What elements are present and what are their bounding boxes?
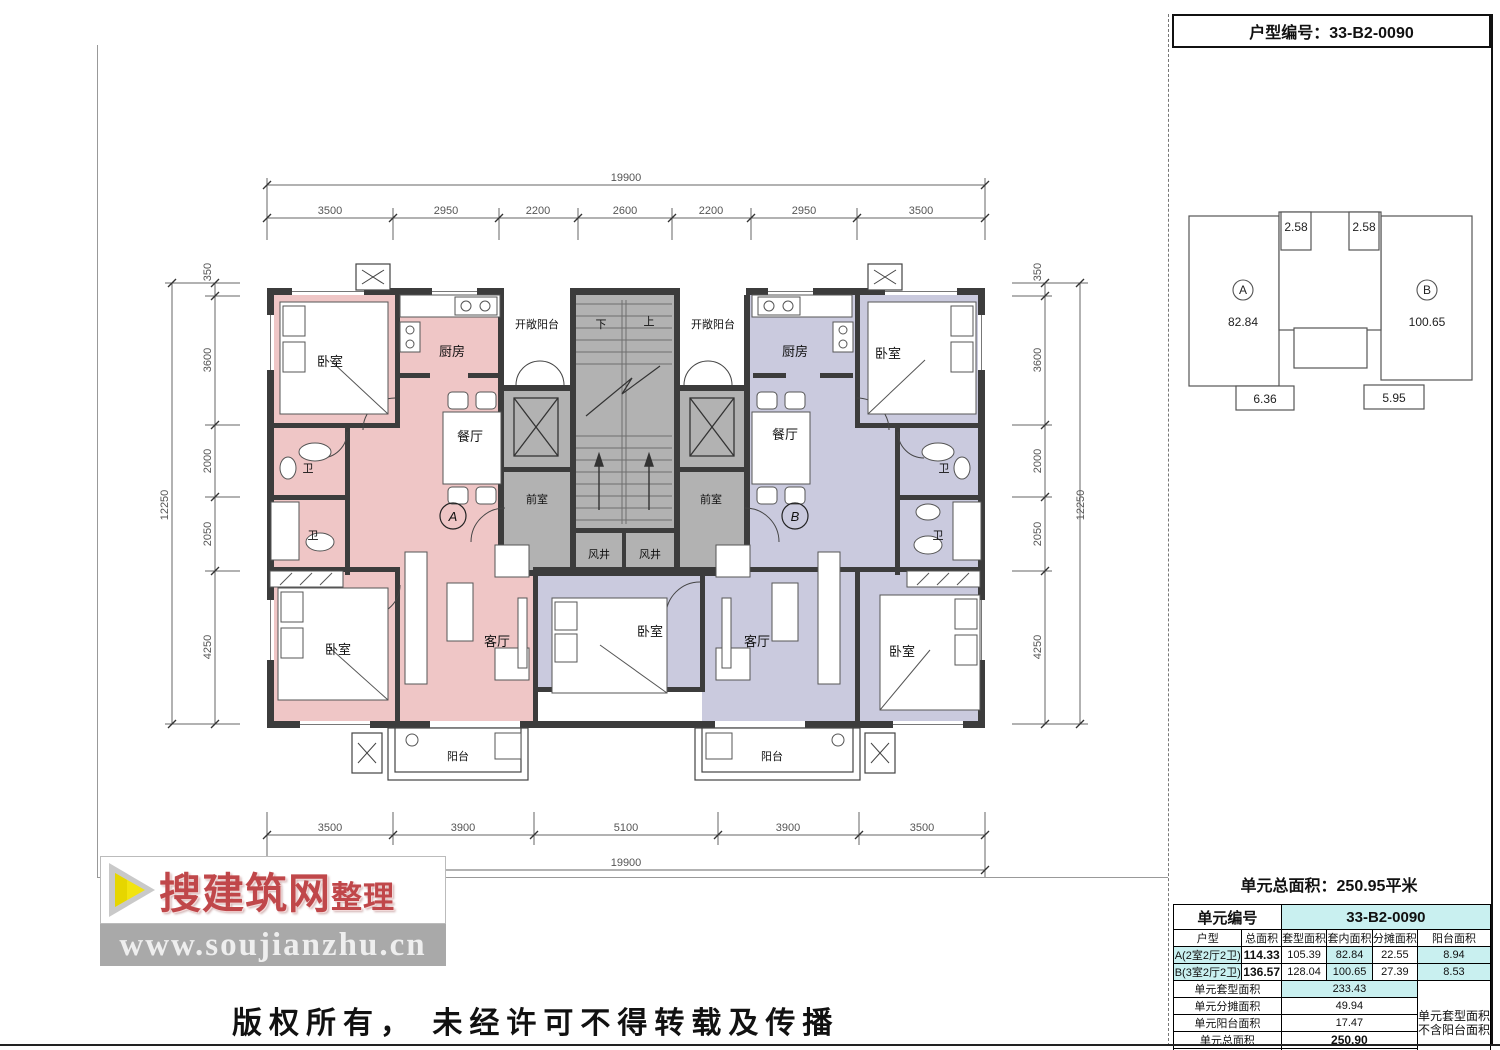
room-label-front-left: 前室	[526, 492, 548, 506]
cell: B(3室2厅2卫)	[1174, 964, 1242, 981]
room-label-b-bath2: 卫	[933, 530, 944, 542]
cell: 105.39	[1281, 947, 1326, 964]
key-unit-a-area: 82.84	[1228, 315, 1258, 329]
room-label-b-balcony: 阳台	[761, 749, 783, 763]
room-label-a-kitchen: 厨房	[439, 344, 465, 359]
table-summary-row: 单元套型面积 233.43 单元套型面积 不含阳台面积	[1174, 981, 1491, 998]
brand-suffix: 整理	[331, 880, 395, 915]
table-row-a: A(2室2厅2卫) 114.33 105.39 82.84 22.55 8.94	[1174, 947, 1491, 964]
dim-left-seg: 4250	[202, 635, 214, 659]
cell: 82.84	[1327, 947, 1372, 964]
key-unit-b-mark: B	[1423, 283, 1431, 297]
table-row-b: B(3室2厅2卫) 136.57 128.04 100.65 27.39 8.5…	[1174, 964, 1491, 981]
table-note: 单元套型面积 不含阳台面积	[1417, 981, 1490, 1050]
area-table: 单元编号 33-B2-0090 户型 总面积 套型面积 套内面积 分摊面积 阳台…	[1173, 904, 1491, 1050]
room-label-open-balcony-right: 开敞阳台	[691, 317, 735, 331]
dim-bottom-seg: 3500	[910, 822, 934, 834]
key-unit-a-mark: A	[1239, 283, 1247, 297]
dim-bottom-total: 19900	[611, 857, 642, 869]
col-header: 套内面积	[1327, 930, 1372, 947]
unit-key-diagram: 2.58 2.58 A B 82.84 100.65 6.36 5.95	[1187, 200, 1479, 418]
open-balcony-left-area	[504, 293, 570, 388]
table-note-line1: 单元套型面积	[1418, 1009, 1490, 1023]
unit-a-mark: A	[448, 509, 458, 524]
room-label-b-kitchen: 厨房	[782, 344, 808, 359]
room-label-shaft-right: 风井	[639, 547, 661, 561]
dim-right-seg: 3600	[1032, 348, 1044, 372]
dim-bottom-seg: 3500	[318, 822, 342, 834]
stair-down-label: 下	[596, 319, 607, 331]
copyright-text: 版权所有， 未经许可不得转载及传播	[232, 998, 992, 1042]
watermark: 搜建筑网整理 www.soujianzhu.cn	[100, 856, 446, 966]
room-label-b-bed-mid: 卧室	[637, 624, 663, 639]
dim-top-seg: 2950	[434, 205, 458, 217]
col-header: 套型面积	[1281, 930, 1326, 947]
summary-value: 17.47	[1281, 1015, 1417, 1032]
cell: A(2室2厅2卫)	[1174, 947, 1242, 964]
dim-right-seg: 2050	[1032, 522, 1044, 546]
bottom-rule	[0, 1044, 1500, 1046]
dim-left-seg: 2050	[202, 522, 214, 546]
room-label-front-right: 前室	[700, 492, 722, 506]
watermark-brand-text: 搜建筑网整理	[159, 860, 395, 921]
cell: 114.33	[1242, 947, 1281, 964]
room-label-shaft-left: 风井	[588, 547, 610, 561]
dim-right-total: 12250	[1075, 490, 1087, 521]
dim-top-seg: 2200	[699, 205, 723, 217]
room-label-a-bath1: 卫	[303, 463, 314, 475]
cell: 100.65	[1327, 964, 1372, 981]
unit-type-title: 户型编号：33-B2-0090	[1249, 19, 1414, 43]
dim-left-seg: 3600	[202, 348, 214, 372]
dim-top-seg: 2950	[792, 205, 816, 217]
open-balcony-right-area	[680, 293, 746, 388]
col-header: 分摊面积	[1372, 930, 1417, 947]
room-label-a-bath2: 卫	[308, 530, 319, 542]
dim-top-seg: 2600	[613, 205, 637, 217]
room-label-a-living: 客厅	[484, 634, 510, 649]
room-label-a-bed2: 卧室	[325, 642, 351, 657]
room-label-a-bed1: 卧室	[317, 354, 343, 369]
dim-right-seg: 350	[1032, 263, 1044, 281]
room-label-open-balcony-left: 开敞阳台	[515, 317, 559, 331]
watermark-logo-icon	[107, 861, 159, 919]
summary-value: 49.94	[1281, 998, 1417, 1015]
dim-top-seg: 2200	[526, 205, 550, 217]
cell: 8.94	[1417, 947, 1490, 964]
cell: 27.39	[1372, 964, 1417, 981]
cell: 128.04	[1281, 964, 1326, 981]
key-balcony-top-right: 2.58	[1352, 220, 1376, 234]
room-label-a-balcony: 阳台	[447, 749, 469, 763]
room-label-a-dining: 餐厅	[457, 429, 483, 444]
col-header: 总面积	[1242, 930, 1281, 947]
watermark-band: 搜建筑网整理	[100, 856, 446, 924]
col-header: 阳台面积	[1417, 930, 1490, 947]
watermark-url: www.soujianzhu.cn	[100, 924, 446, 966]
dim-bottom-seg: 5100	[614, 822, 638, 834]
room-label-b-living: 客厅	[744, 634, 770, 649]
dim-bottom-seg: 3900	[451, 822, 475, 834]
cell: 8.53	[1417, 964, 1490, 981]
key-balcony-bottom-right: 5.95	[1382, 391, 1406, 405]
cell: 22.55	[1372, 947, 1417, 964]
dim-right-seg: 2000	[1032, 449, 1044, 473]
key-balcony-bottom-left: 6.36	[1253, 392, 1277, 406]
table-header-row: 户型 总面积 套型面积 套内面积 分摊面积 阳台面积	[1174, 930, 1491, 947]
key-balcony-top-left: 2.58	[1284, 220, 1308, 234]
dim-top-seg: 3500	[909, 205, 933, 217]
dim-top-seg: 3500	[318, 205, 342, 217]
dim-bottom-seg: 3900	[776, 822, 800, 834]
stair-up-label: 上	[644, 315, 655, 328]
summary-value: 233.43	[1281, 981, 1417, 998]
table-unit-no-label: 单元编号	[1174, 905, 1282, 930]
dim-right-seg: 4250	[1032, 635, 1044, 659]
floor-plan-sheet: 卧室 厨房 餐厅 卫 卫 卧室 客厅 A 阳台 开敞阳台 开敞阳台 下 上 前室…	[0, 0, 1500, 1050]
dim-left-seg: 2000	[202, 449, 214, 473]
summary-label: 单元阳台面积	[1174, 1015, 1282, 1032]
summary-label: 单元套型面积	[1174, 981, 1282, 998]
room-label-b-bath1: 卫	[939, 463, 950, 475]
room-label-b-bed1: 卧室	[875, 346, 901, 361]
title-block-panel: 户型编号：33-B2-0090 2.58 2.58 A B 82.	[1168, 14, 1493, 1046]
unit-type-title-box: 户型编号：33-B2-0090	[1172, 14, 1491, 48]
room-label-b-bed2: 卧室	[889, 644, 915, 659]
room-label-b-dining: 餐厅	[772, 427, 798, 442]
summary-label: 单元分摊面积	[1174, 998, 1282, 1015]
unit-total-area-line: 单元总面积：250.95平米	[1179, 872, 1479, 896]
table-note-line2: 不含阳台面积	[1418, 1023, 1490, 1037]
key-unit-b-area: 100.65	[1409, 315, 1446, 329]
unit-b-mark: B	[791, 509, 800, 524]
dim-left-seg: 350	[202, 263, 214, 281]
dim-top-total: 19900	[611, 172, 642, 184]
dim-left-total: 12250	[159, 490, 171, 521]
brand-main: 搜建筑网	[159, 870, 331, 917]
table-unit-no-value: 33-B2-0090	[1281, 905, 1490, 930]
cell: 136.57	[1242, 964, 1281, 981]
col-header: 户型	[1174, 930, 1242, 947]
